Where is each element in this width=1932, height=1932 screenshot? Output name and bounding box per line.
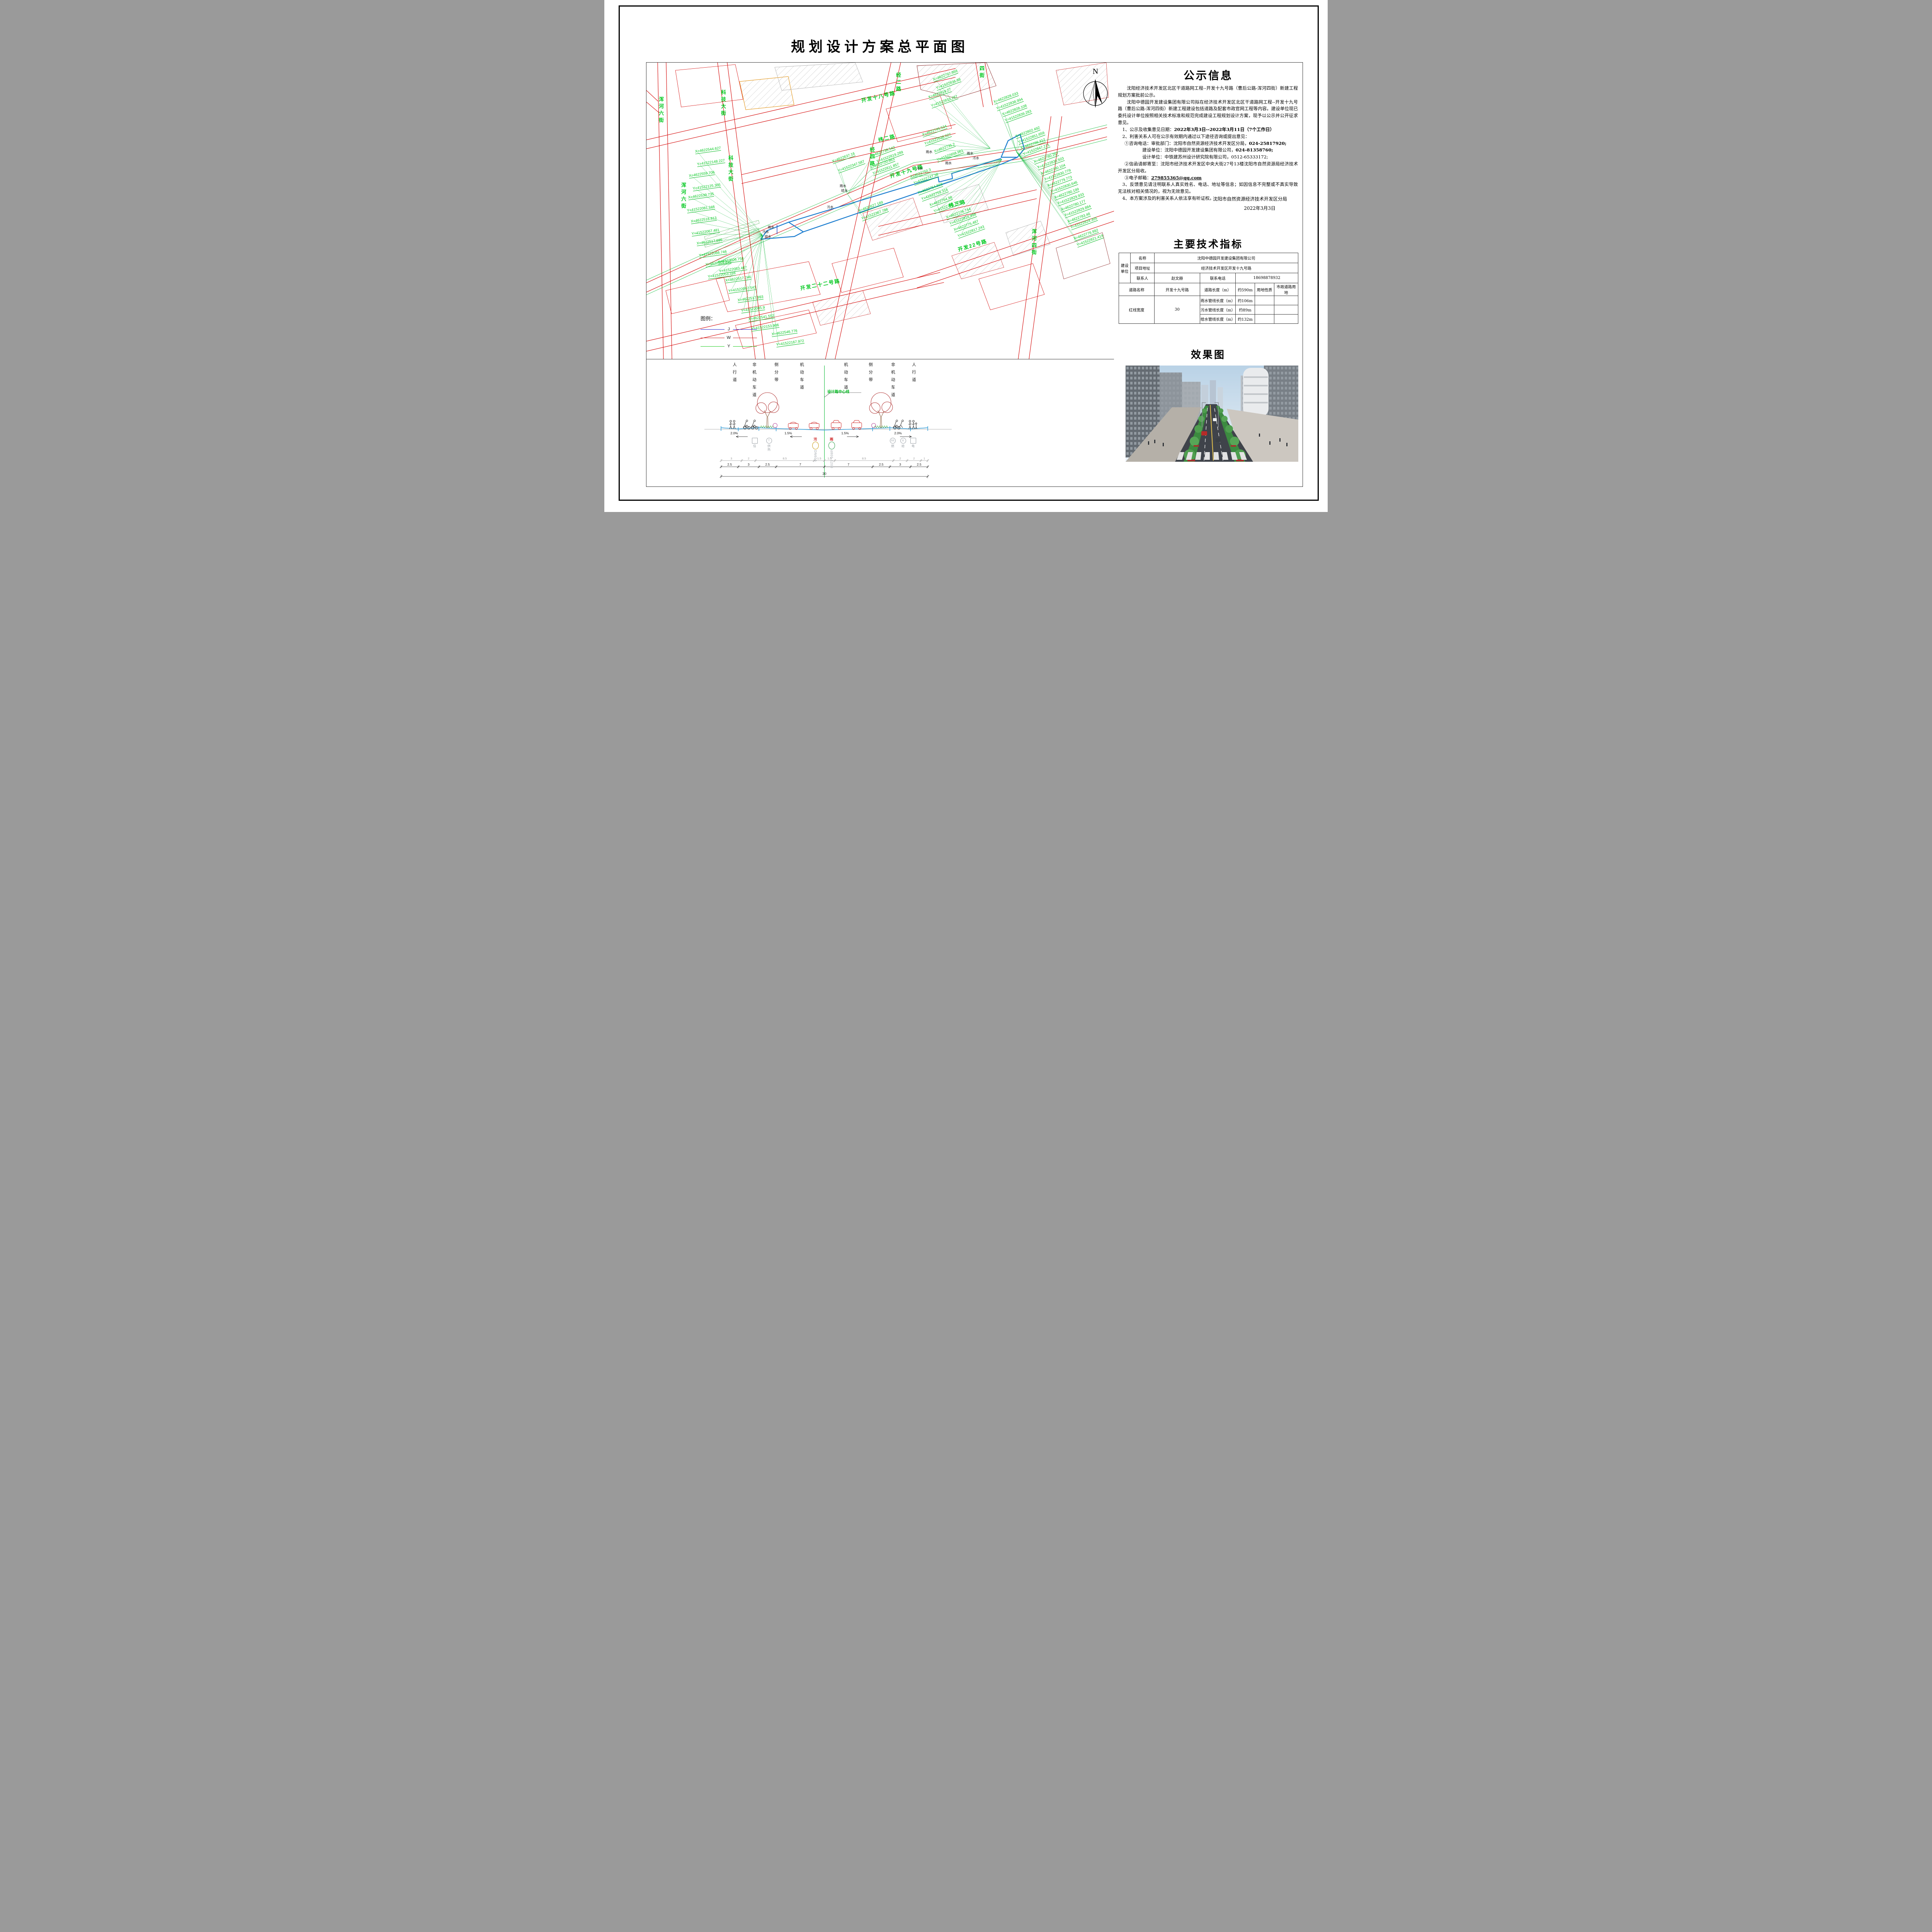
- coordinate-label: X=4622517.993: [737, 295, 764, 303]
- cell-sewage-value: 约89m: [1236, 305, 1255, 315]
- pedestrians: [729, 420, 758, 429]
- site-plan-map: X=4622544.627Y=41522148.227X=4622559.706…: [646, 62, 1115, 360]
- road-name-label: 纬二路: [878, 132, 896, 143]
- cell-road-len-value: 约590m: [1236, 283, 1255, 296]
- svg-text:2.5: 2.5: [917, 463, 922, 466]
- indicators-title: 主要技术指标: [1114, 236, 1303, 251]
- road-name-label: 开发22号路: [957, 237, 988, 253]
- pipeline-label: 污水: [827, 205, 833, 209]
- lane-label: 非机动车道: [752, 362, 757, 400]
- utility-symbol: 信: [747, 437, 762, 448]
- coordinate-label: Y=41522081.246: [687, 205, 715, 213]
- pipeline-label: 雨水: [926, 150, 932, 154]
- cell-road-name-value: 开发十九号路: [1155, 283, 1200, 296]
- svg-text:7: 7: [848, 463, 850, 466]
- coordinate-label: Y=41522167.972: [776, 339, 804, 347]
- cell-phone-label: 联系电话: [1200, 273, 1236, 283]
- coordinate-label: X=4622544.627: [695, 146, 721, 154]
- cell-land-label: 用地性质: [1255, 283, 1274, 296]
- svg-text:2.5: 2.5: [765, 463, 770, 466]
- svg-text:1: 1: [923, 457, 925, 460]
- notice-paragraph: 3、反馈意见请注明联系人真实姓名、电话、地址等信息；如因信息不完整或不真实导致无…: [1118, 181, 1298, 195]
- utility-symbol: 电: [905, 437, 921, 448]
- coordinate-label: X=4622517.695: [696, 238, 723, 246]
- render-title: 效果图: [1114, 347, 1303, 361]
- cell-redline-label: 红线宽度: [1119, 296, 1155, 324]
- legend-item: J: [701, 325, 757, 333]
- notice-paragraph: 沈阳经济技术开发区北区干道路网工程--开发十九号路（曹后公路-浑河四街）新建工程…: [1118, 85, 1298, 99]
- render-photo: [1126, 366, 1298, 462]
- coordinate-label: Y=41522067.481: [691, 228, 719, 236]
- lane-label: 侧分带: [868, 362, 874, 385]
- notice-body: 沈阳经济技术开发区北区干道路网工程--开发十九号路（曹后公路-浑河四街）新建工程…: [1118, 85, 1298, 202]
- cell-unit-group: 建设单位: [1119, 253, 1131, 283]
- road-name-label: 经二路: [895, 72, 902, 93]
- compass-n-label: N: [1093, 67, 1098, 76]
- svg-text:30: 30: [822, 472, 826, 476]
- pipeline-label: 雨水: [967, 151, 973, 156]
- coordinate-label: Y=41522067.541: [728, 286, 756, 294]
- slope-label: 1.5%: [781, 431, 796, 435]
- coordinate-label: Y=41522148.227: [697, 159, 725, 167]
- cross-section-drawing: 328.51.51.58.52212.532.5772.532.530: [646, 359, 1114, 486]
- svg-text:8.5: 8.5: [783, 457, 787, 460]
- coordinate-label: Y=41522066.746: [699, 250, 727, 258]
- notice-paragraph: 沈阳中德园开发建设集团有限公司拟在经济技术开发区北区干道路网工程--开发十九号路…: [1118, 99, 1298, 126]
- legend-title: 图例：: [701, 315, 757, 322]
- cell-rain-label: 雨水管线长度（m）: [1200, 296, 1236, 305]
- cell-road-name-label: 道路名称: [1119, 283, 1155, 296]
- svg-text:8.5: 8.5: [862, 457, 866, 460]
- lane-label: 机动车道: [799, 362, 805, 393]
- notice-paragraph: ②信函请邮寄至：沈阳市经济技术开发区中央大街27号13楼沈阳市自然资源局经济技术…: [1118, 161, 1298, 175]
- road-name-label: 浑河六街: [680, 182, 687, 210]
- cell-phone-value: 18698878932: [1236, 273, 1298, 283]
- coordinate-label: X=4622637.16: [832, 152, 855, 164]
- cell-contact-label: 联系人: [1131, 273, 1155, 283]
- pipeline-label: 污水: [916, 166, 923, 171]
- legend-item: Y: [701, 342, 757, 350]
- road-name-label: 四街: [978, 66, 985, 80]
- cell-water-value: 约132m: [1236, 315, 1255, 324]
- coordinate-label: X=4622546.776: [771, 329, 798, 337]
- slope-label: 1.5%: [837, 431, 853, 435]
- notice-paragraph: 1、公示及收集意见日期：2022年3月3日--2022年3月11日（7个工作日）: [1118, 126, 1298, 133]
- notice-paragraph: ①咨询电话：审批部门：沈阳市自然资源经济技术开发区分局，024-25817920…: [1118, 140, 1298, 147]
- svg-text:2: 2: [748, 457, 749, 460]
- drawing-sheet: 规划设计方案总平面图: [604, 0, 1328, 512]
- coordinate-label: X=4622517.746: [725, 276, 751, 283]
- slope-label: 2.0%: [890, 431, 906, 435]
- notice-paragraph: ③电子邮箱：279855365@qq.com: [1118, 175, 1298, 182]
- road-name-label: 浑河六街: [657, 97, 665, 124]
- cell-addr-value: 经济技术开发区开发十九号路: [1155, 263, 1298, 273]
- pipeline-label: 污水: [973, 156, 979, 160]
- svg-text:3: 3: [899, 463, 901, 466]
- road-name-label: 科技大街: [719, 90, 727, 117]
- legend-item: W: [701, 333, 757, 342]
- cell-redline-value: 30: [1155, 296, 1200, 324]
- cell-rain-value: 约106m: [1236, 296, 1255, 305]
- pipeline-label: 雨水: [768, 225, 774, 230]
- notice-paragraph: 2、利害关系人可在公示有效期内通过以下途径咨询或提出意见：: [1118, 133, 1298, 140]
- info-panel: 公示信息 沈阳经济技术开发区北区干道路网工程--开发十九号路（曹后公路-浑河四街…: [1114, 62, 1303, 487]
- signature-org: 沈阳市自然资源经济技术开发区分局: [1213, 196, 1287, 202]
- utility-symbol: 雨d800-1200: [824, 437, 839, 469]
- cell-land-value: 市政道路用地: [1274, 283, 1298, 296]
- cell-sewage-label: 污水管线长度（m）: [1200, 305, 1236, 315]
- road-name-label: 经四路: [868, 147, 876, 168]
- pipeline-label: 给水: [841, 188, 848, 193]
- cyclists-right: [893, 420, 917, 429]
- lane-label: 侧分带: [774, 362, 779, 385]
- svg-text:2.5: 2.5: [727, 463, 732, 466]
- road-name-label: 浑河四街: [1030, 229, 1037, 257]
- cell-water-label: 给水管线长度（m）: [1200, 315, 1236, 324]
- utility-symbol: 污DN600: [808, 437, 823, 462]
- lane-label: 机动车道: [843, 362, 849, 393]
- svg-text:2: 2: [913, 457, 915, 460]
- notice-paragraph: 建设单位：沈阳中德园开发建设集团有限公司，024-81358760;: [1118, 147, 1298, 154]
- road-name-label: 科技大街: [727, 155, 734, 183]
- centerline-label: 设计路中心线: [827, 389, 849, 394]
- svg-text:2.5: 2.5: [879, 463, 884, 466]
- cell-addr-label: 项目地址: [1131, 263, 1155, 273]
- coordinate-label: Y=41522085.9: [741, 306, 765, 313]
- coordinate-label: Y=41522125.305: [692, 183, 721, 191]
- utility-symbol: T供热: [761, 437, 777, 451]
- coordinate-label: X=4622518.813: [690, 216, 717, 224]
- pipeline-label: 给水: [765, 234, 771, 239]
- lane-label: 非机动车道: [890, 362, 896, 400]
- signature-date: 2022年3月3日: [1244, 205, 1276, 211]
- coordinate-label: X=4622559.706: [689, 171, 715, 179]
- cell-name-label: 名称: [1131, 253, 1155, 263]
- cars: [788, 420, 862, 430]
- cell-contact-value: 赵文赫: [1155, 273, 1200, 283]
- road-name-label: 开发二十二号路: [799, 277, 841, 292]
- pipeline-label: 雨水: [840, 184, 846, 188]
- road-cross-section: 328.51.51.58.52212.532.5772.532.530 人行道非…: [646, 359, 1115, 487]
- map-legend: 图例： JWY: [701, 315, 757, 350]
- svg-text:3: 3: [748, 463, 750, 466]
- slope-label: 2.0%: [726, 431, 742, 435]
- coordinate-label: X=4622539.735: [688, 192, 714, 200]
- page-title: 规划设计方案总平面图: [720, 36, 1039, 56]
- road-name-label: 开发十八号路: [861, 89, 896, 104]
- pipeline-label: 雨水: [945, 161, 952, 165]
- svg-text:2: 2: [900, 457, 901, 460]
- notice-paragraph: 设计单位：中铁建苏州设计研究院有限公司，0512-65333172;: [1118, 154, 1298, 161]
- svg-text:7: 7: [799, 463, 801, 466]
- indicators-table: 建设单位 名称 沈阳中德园开发建设集团有限公司 项目地址 经济技术开发区开发十九…: [1119, 253, 1298, 324]
- coordinate-label: Y=41522347.587: [837, 160, 865, 173]
- svg-text:3: 3: [731, 457, 732, 460]
- compass-north-icon: N: [1080, 67, 1111, 111]
- cell-road-len-label: 道路长度（m）: [1200, 283, 1236, 296]
- notice-title: 公示信息: [1114, 67, 1303, 83]
- lane-label: 人行道: [911, 362, 917, 385]
- pipeline-label: 污水: [762, 230, 769, 234]
- lane-label: 人行道: [732, 362, 738, 385]
- cell-name-value: 沈阳中德园开发建设集团有限公司: [1155, 253, 1298, 263]
